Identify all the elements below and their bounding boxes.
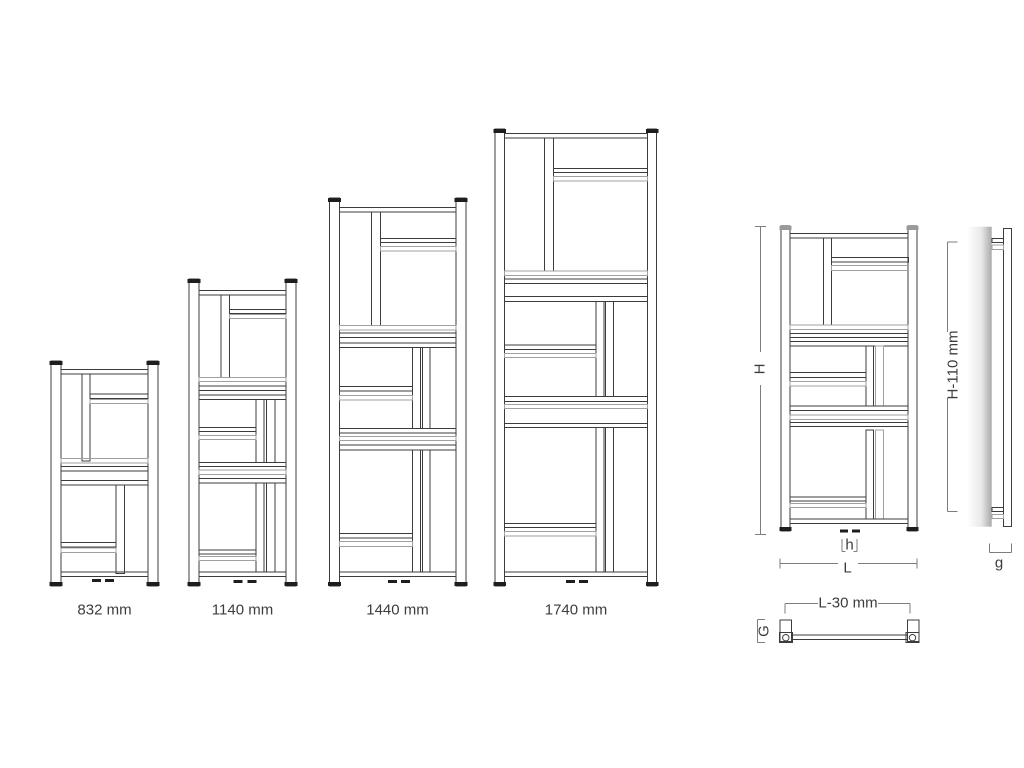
dim-label-length-L: L bbox=[843, 561, 851, 576]
diagram-canvas bbox=[0, 0, 1024, 768]
dim-label-l-minus-30: L-30 mm bbox=[818, 596, 877, 611]
size-label-832: 832 mm bbox=[77, 603, 131, 618]
dimension-side-view bbox=[968, 227, 1011, 527]
dimension-top-view bbox=[779, 620, 919, 643]
dimension-front-view bbox=[780, 226, 919, 533]
size-label-1440: 1440 mm bbox=[366, 603, 429, 618]
dim-label-depth-G: G bbox=[756, 625, 771, 637]
size-label-1740: 1740 mm bbox=[545, 603, 608, 618]
radiator-832 bbox=[50, 361, 160, 586]
dim-label-depth-g: g bbox=[995, 555, 1003, 570]
dim-label-h-minus-110: H-110 mm bbox=[946, 331, 961, 400]
radiator-1440 bbox=[328, 198, 468, 586]
radiator-1740 bbox=[494, 129, 659, 586]
size-label-1140: 1140 mm bbox=[212, 603, 273, 618]
dim-label-spacing-h: h bbox=[845, 538, 853, 553]
radiator-size-diagram: 832 mm 1140 mm 1440 mm 1740 mm H L h H-1… bbox=[0, 0, 1024, 768]
radiator-1140 bbox=[188, 279, 298, 586]
dim-label-height-H: H bbox=[753, 363, 768, 374]
